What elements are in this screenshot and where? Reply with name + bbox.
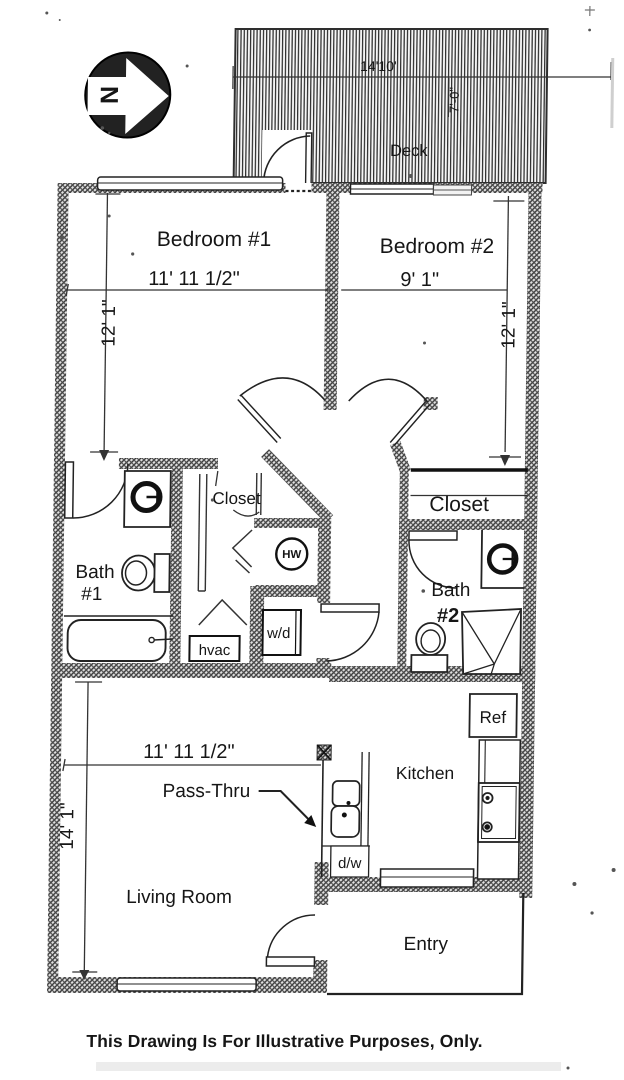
svg-text:Bedroom #2: Bedroom #2 [380, 235, 495, 258]
svg-text:Closet: Closet [429, 493, 489, 516]
svg-text:Bath: Bath [431, 580, 470, 601]
svg-text:12' 1": 12' 1" [98, 299, 120, 346]
svg-text:Bedroom #1: Bedroom #1 [157, 228, 272, 251]
svg-text:Deck: Deck [390, 142, 429, 160]
svg-text:11' 11 1/2": 11' 11 1/2" [143, 741, 235, 763]
svg-text:Pass-Thru: Pass-Thru [163, 781, 251, 802]
svg-text:14'10': 14'10' [360, 58, 397, 74]
svg-text:#2: #2 [437, 605, 460, 627]
svg-text:Ref: Ref [479, 708, 506, 727]
svg-text:hvac: hvac [199, 642, 231, 659]
svg-text:Entry: Entry [403, 934, 448, 955]
svg-text:11' 11 1/2": 11' 11 1/2" [148, 268, 240, 290]
svg-text:7'-0": 7'-0" [447, 87, 462, 113]
svg-text:Kitchen: Kitchen [396, 763, 455, 783]
svg-text:14' 1": 14' 1" [57, 802, 79, 849]
svg-text:Living Room: Living Room [126, 887, 232, 908]
svg-text:HW: HW [282, 549, 301, 561]
svg-text:#1: #1 [81, 584, 102, 605]
svg-text:Closet: Closet [212, 489, 261, 508]
svg-text:w/d: w/d [266, 625, 291, 642]
svg-text:9' 1": 9' 1" [400, 269, 439, 291]
svg-text:d/w: d/w [338, 855, 362, 872]
svg-text:N: N [95, 86, 123, 104]
svg-text:12' 1": 12' 1" [498, 301, 520, 348]
svg-text:This Drawing Is For Illustrat: This Drawing Is For Illustrative Purpose… [86, 1031, 483, 1051]
svg-text:Bath: Bath [75, 562, 114, 583]
